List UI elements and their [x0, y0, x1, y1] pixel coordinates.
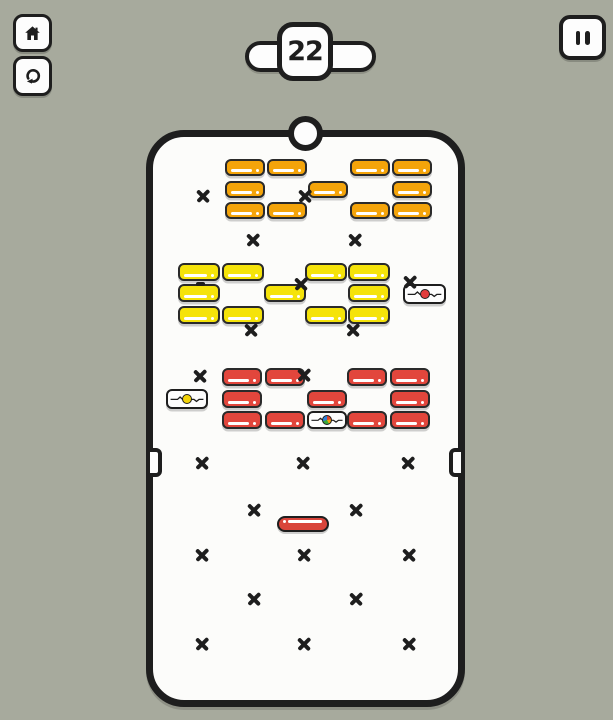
level-badge: 22: [277, 22, 333, 81]
game-board[interactable]: [146, 130, 465, 707]
home-button[interactable]: [13, 14, 52, 52]
paddle-shine: [288, 520, 322, 523]
pause-button[interactable]: [559, 15, 606, 60]
home-icon: [23, 24, 42, 43]
restart-button[interactable]: [13, 56, 52, 96]
pause-icon: [576, 31, 590, 45]
game-screen: 22: [0, 0, 613, 720]
restart-icon: [22, 66, 43, 87]
paddle-shine-dot: [283, 520, 286, 523]
paddle[interactable]: [277, 516, 329, 532]
ball: [288, 116, 323, 151]
level-value: 22: [287, 36, 323, 67]
